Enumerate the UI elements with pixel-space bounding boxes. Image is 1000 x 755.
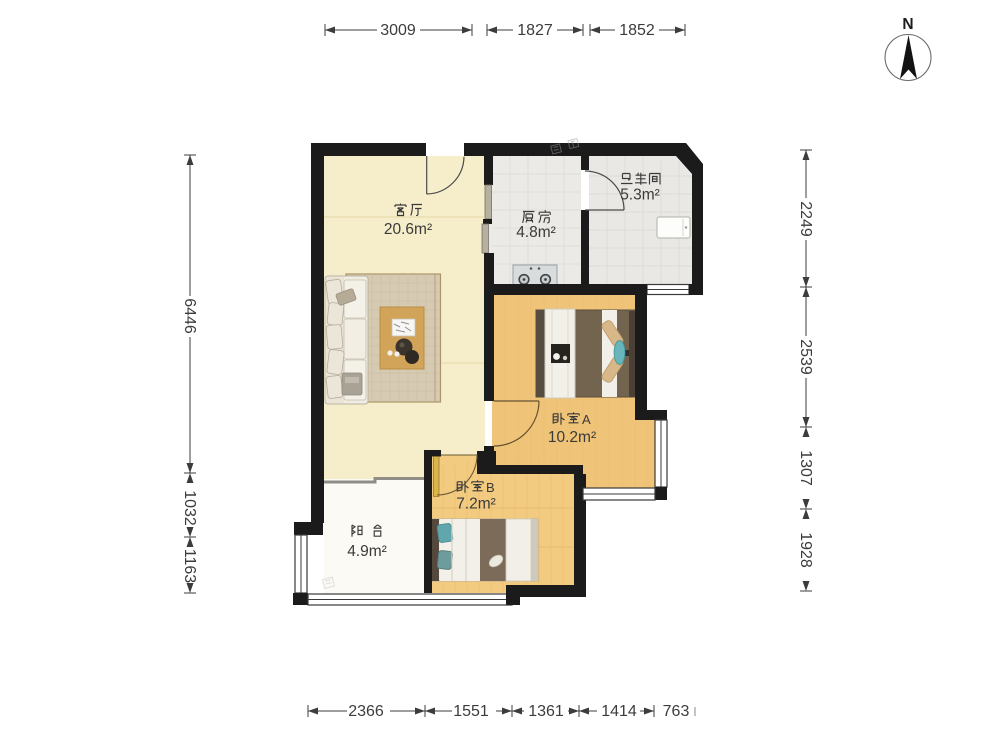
svg-text:3009: 3009 — [380, 22, 416, 39]
svg-text:20.6m²: 20.6m² — [384, 221, 432, 238]
svg-text:2539: 2539 — [797, 339, 814, 375]
svg-text:1163: 1163 — [181, 549, 198, 584]
svg-text:763: 763 — [663, 703, 690, 720]
svg-text:A: A — [582, 412, 591, 427]
svg-text:6446: 6446 — [181, 298, 198, 334]
svg-text:1032: 1032 — [181, 490, 198, 526]
svg-text:10.2m²: 10.2m² — [548, 429, 596, 446]
svg-text:4.9m²: 4.9m² — [347, 543, 387, 560]
svg-text:7.2m²: 7.2m² — [456, 496, 496, 513]
svg-text:2249: 2249 — [797, 201, 814, 237]
svg-text:1928: 1928 — [797, 532, 814, 568]
svg-text:1551: 1551 — [453, 703, 489, 720]
svg-text:1852: 1852 — [619, 22, 655, 39]
svg-text:2366: 2366 — [348, 703, 384, 720]
svg-text:1414: 1414 — [601, 703, 637, 720]
svg-text:N: N — [902, 16, 913, 33]
svg-text:5.3m²: 5.3m² — [620, 187, 660, 204]
svg-text:1827: 1827 — [517, 22, 553, 39]
svg-text:B: B — [486, 480, 495, 495]
svg-text:1361: 1361 — [528, 703, 564, 720]
svg-text:1307: 1307 — [797, 450, 814, 486]
svg-text:4.8m²: 4.8m² — [516, 224, 556, 241]
